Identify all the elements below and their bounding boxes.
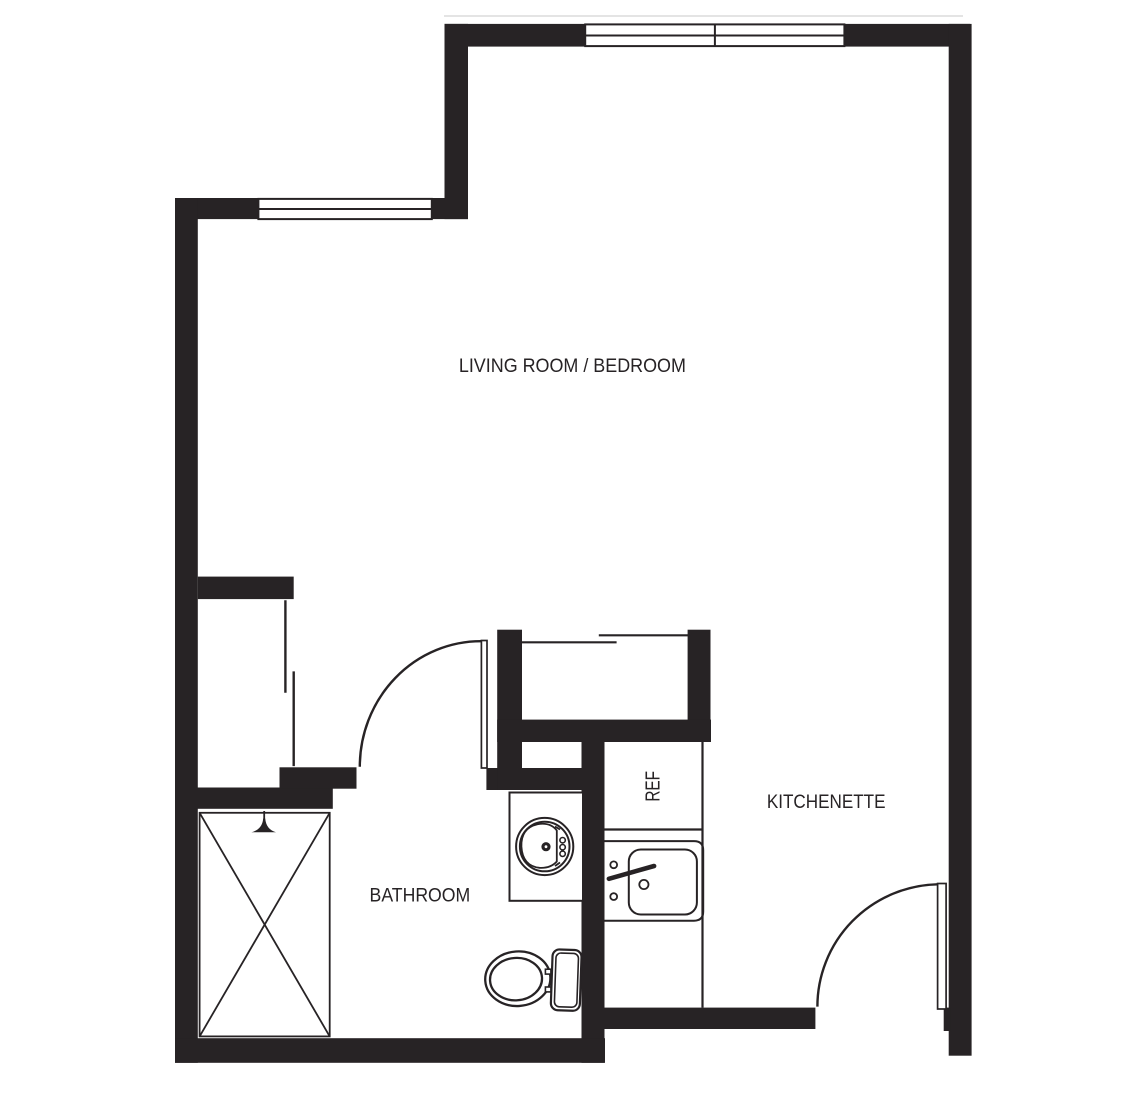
svg-text:KITCHENETTE: KITCHENETTE [767,791,886,812]
svg-text:REF: REF [641,771,664,802]
svg-text:LIVING ROOM / BEDROOM: LIVING ROOM / BEDROOM [459,355,686,377]
svg-text:BATHROOM: BATHROOM [370,884,471,906]
